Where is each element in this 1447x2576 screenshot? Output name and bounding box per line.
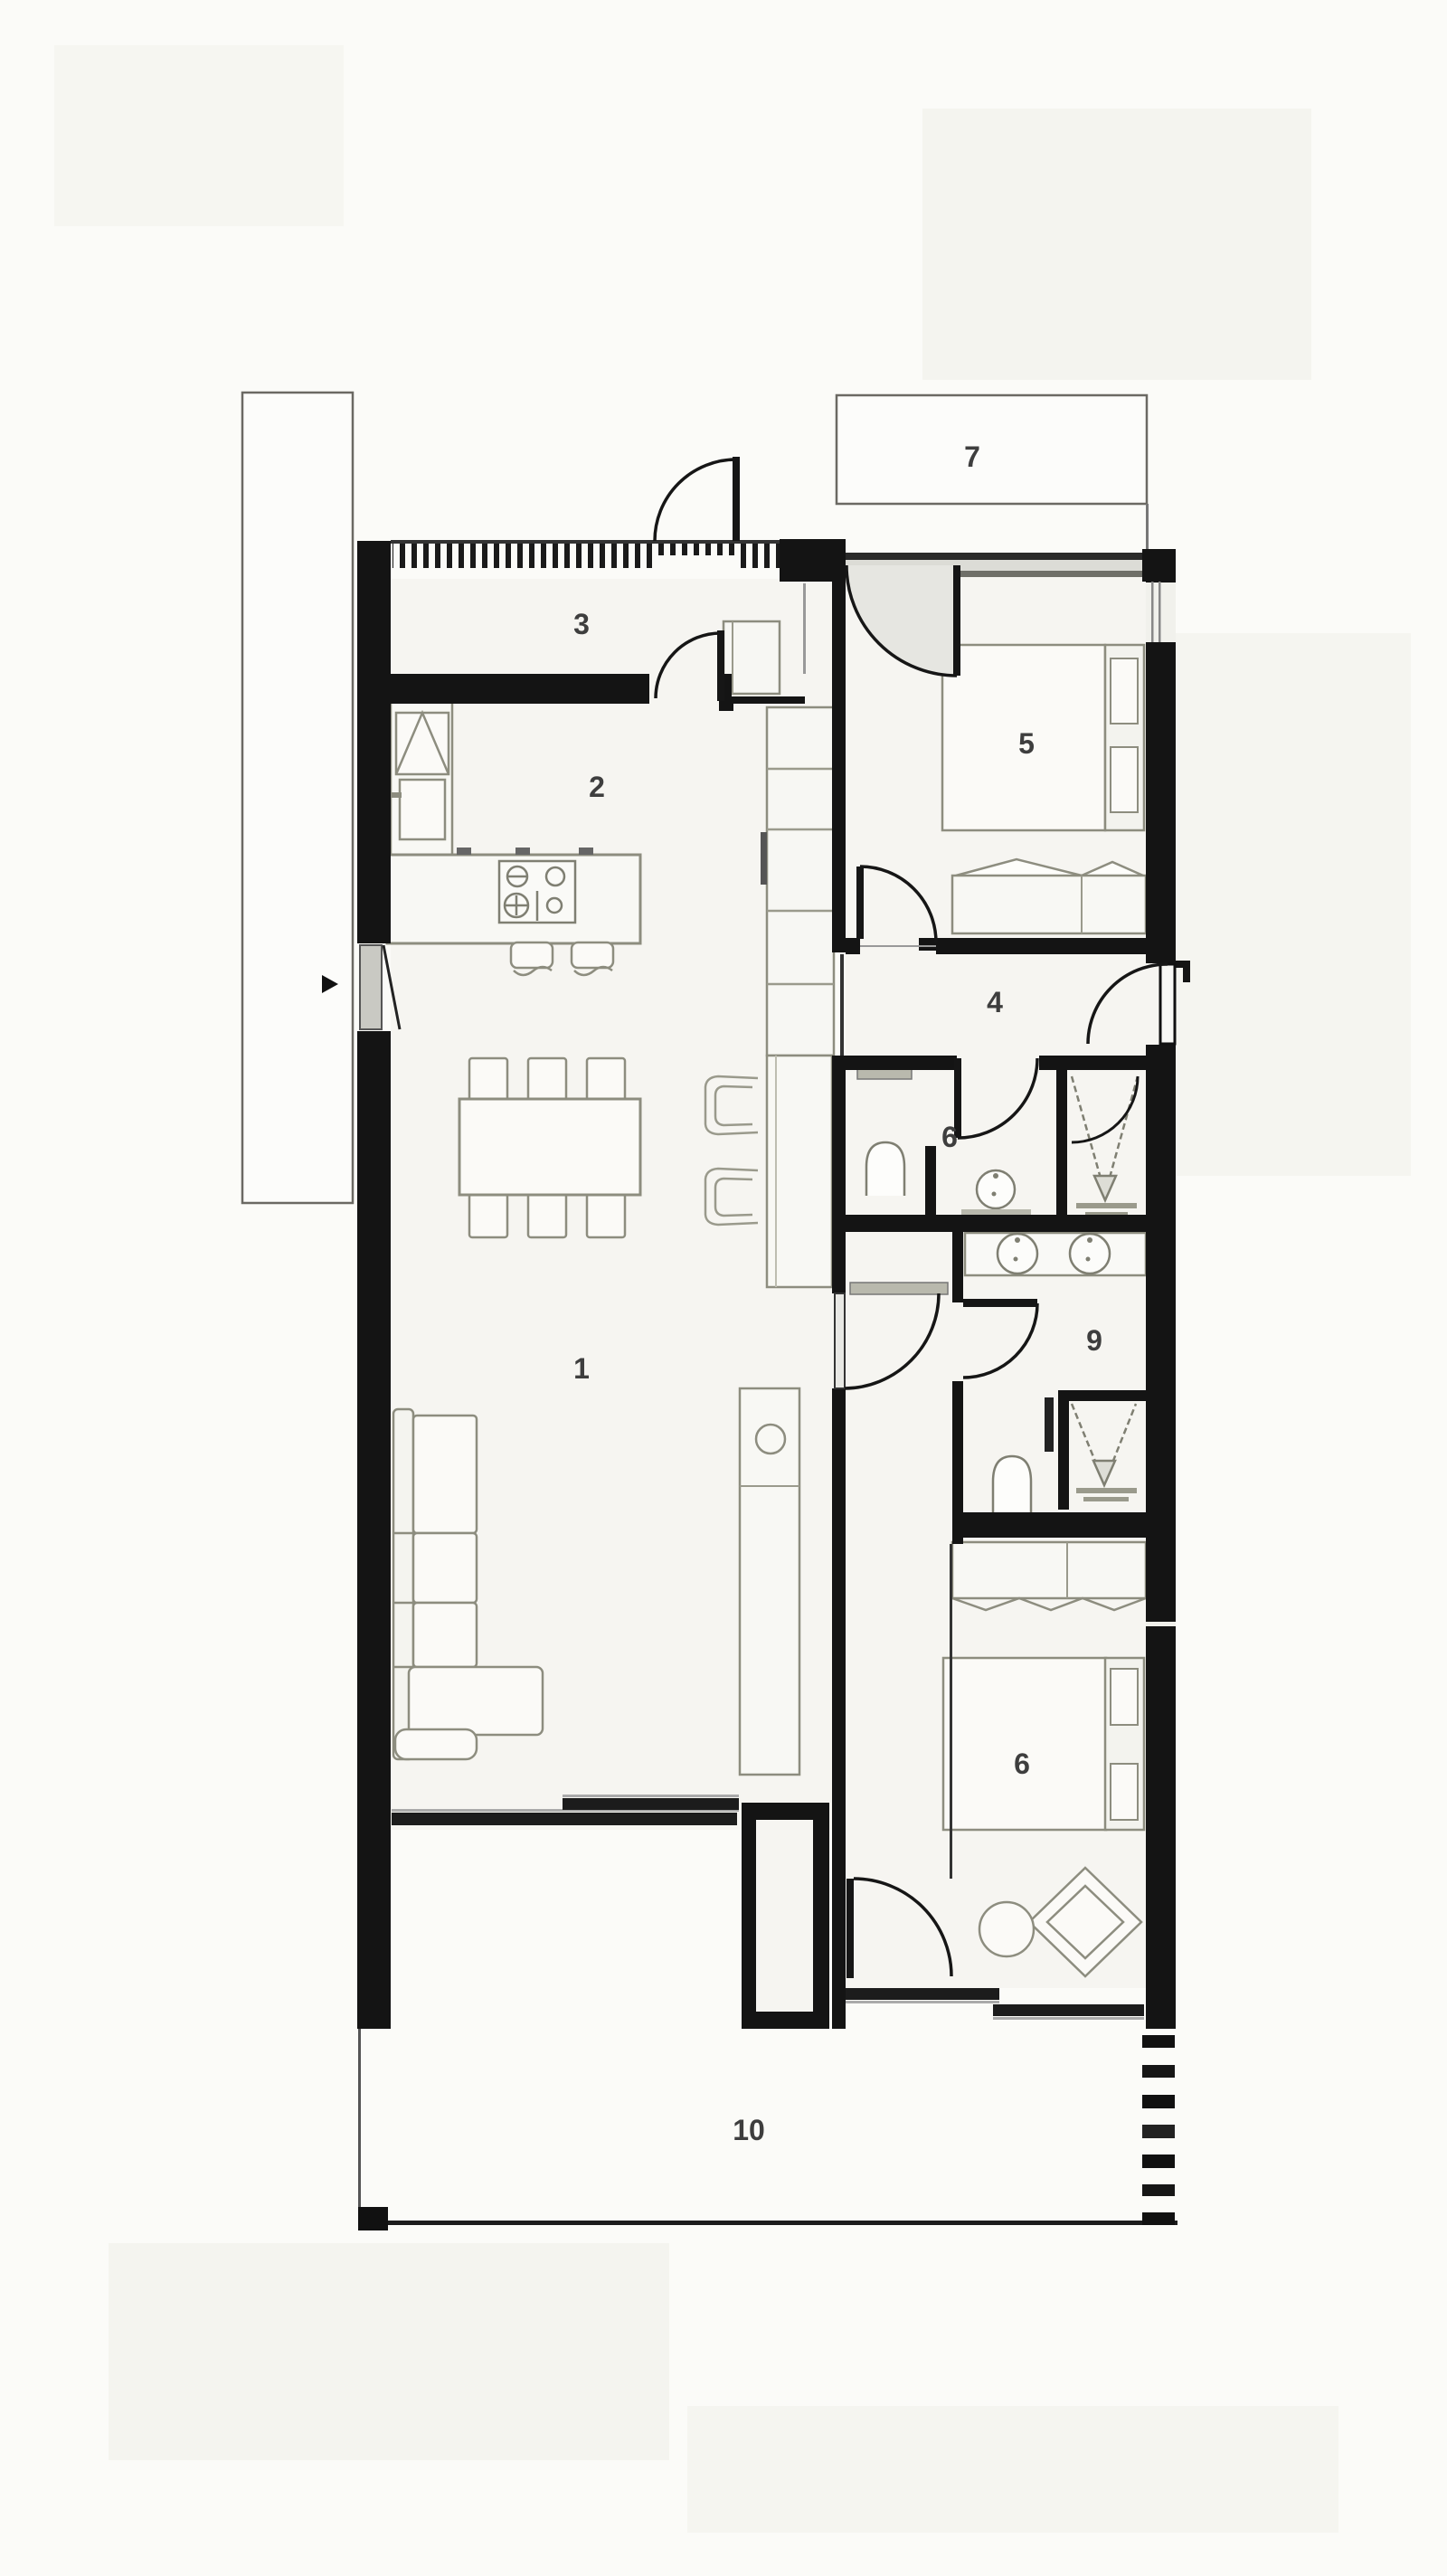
bedroom1-bench [952, 859, 1146, 933]
ledge [850, 1283, 948, 1294]
room-label-bathroom1: 6 [941, 1121, 958, 1153]
bed-1 [942, 645, 1144, 830]
stool [979, 1902, 1034, 1956]
wardrobe [952, 1542, 1146, 1598]
vanity [965, 1233, 1146, 1275]
room-label-kitchen: 2 [589, 771, 605, 803]
room-label-living: 1 [573, 1352, 590, 1385]
room-label-bedroom2: 6 [1014, 1747, 1030, 1780]
room-label-hall3: 3 [573, 608, 590, 640]
room-label-hall4: 4 [987, 986, 1003, 1018]
toilet-icon [993, 1456, 1031, 1512]
floor-plan-page: 1 2 3 4 5 6 7 6 9 10 [0, 0, 1447, 2576]
kitchen-island [387, 848, 640, 943]
bed-2 [943, 1658, 1106, 1830]
floor-plan-svg: 1 2 3 4 5 6 7 6 9 10 [0, 0, 1447, 2576]
cooktop-icon [499, 861, 575, 923]
dining-table [459, 1099, 640, 1195]
kitchen-tall-cabinets [761, 707, 834, 1056]
exterior-outline-left [242, 393, 353, 1203]
dining-set [459, 1058, 640, 1237]
room-label-bathroom2: 9 [1086, 1324, 1102, 1357]
room-label-terrace10: 10 [733, 2114, 765, 2146]
desk [767, 1056, 832, 1287]
room-label-terrace7: 7 [964, 440, 980, 473]
shelf [857, 1069, 912, 1079]
room-label-bedroom1: 5 [1018, 727, 1035, 760]
counter-unit [740, 1388, 799, 1775]
toilet-icon [866, 1142, 904, 1196]
